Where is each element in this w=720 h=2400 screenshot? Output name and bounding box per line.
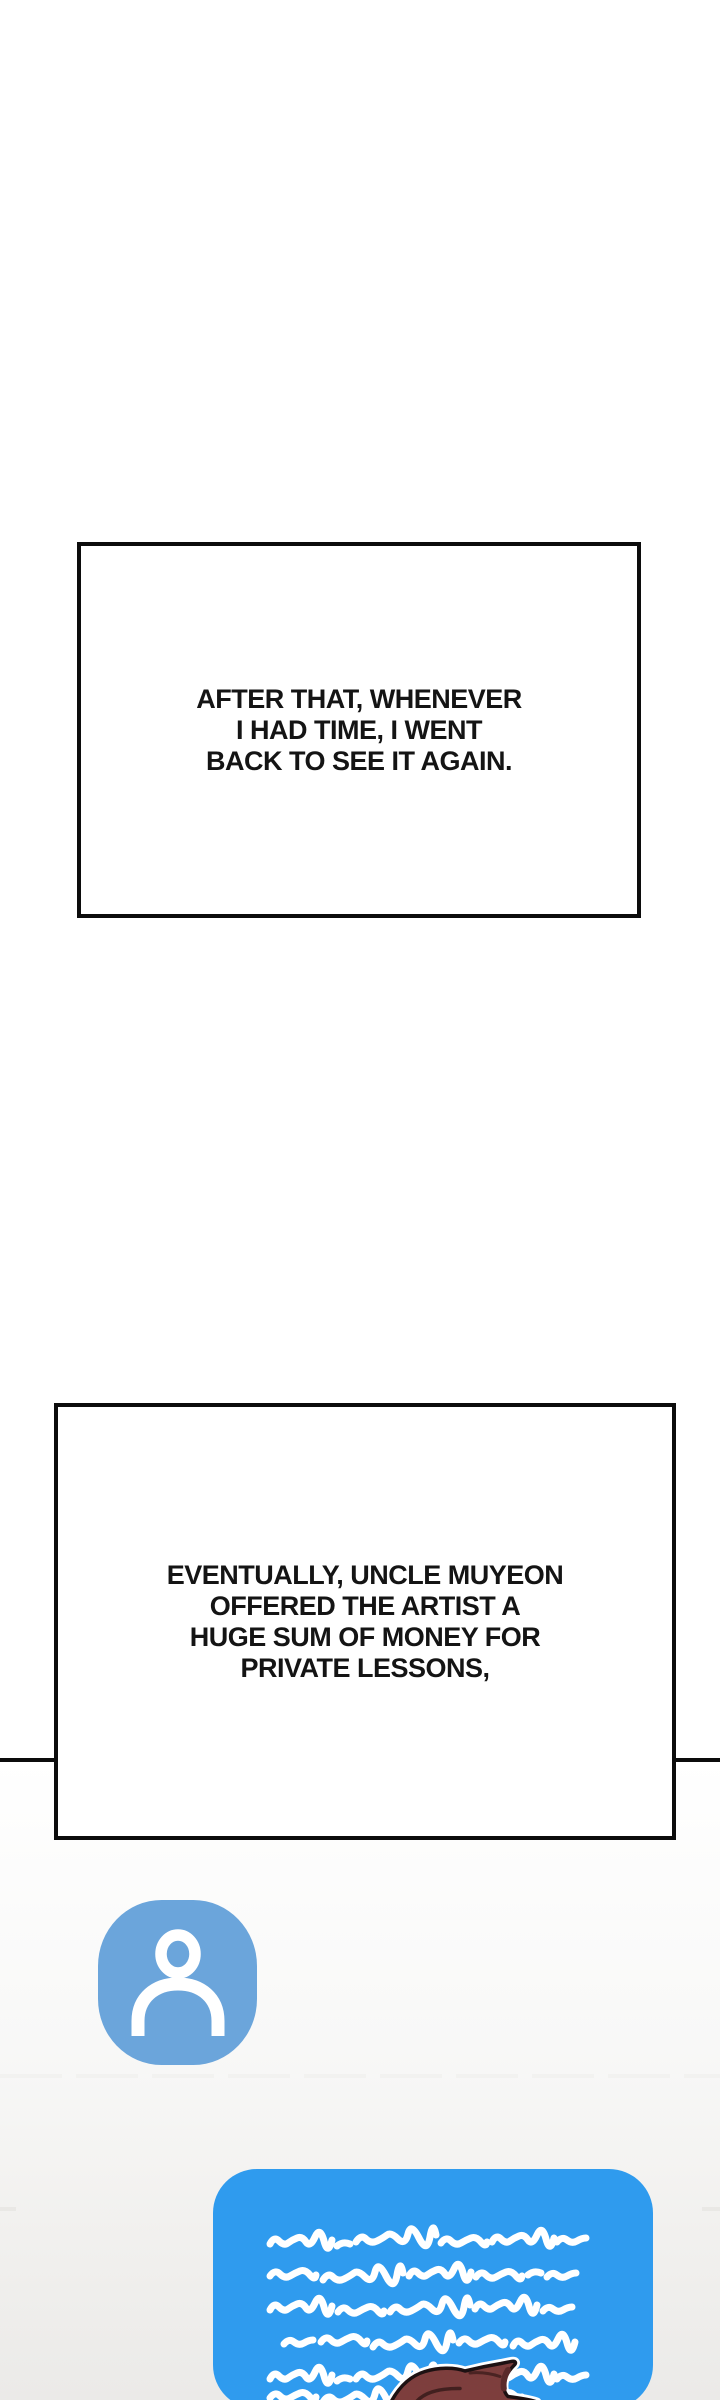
bubble-artwork bbox=[213, 2169, 653, 2400]
caption-line: AFTER THAT, WHENEVER bbox=[196, 684, 522, 715]
person-icon bbox=[98, 1900, 257, 2065]
caption-panel-2: EVENTUALLY, UNCLE MUYEON OFFERED THE ART… bbox=[54, 1403, 676, 1840]
background-dashed-line bbox=[0, 2074, 720, 2078]
background-edge-mark-right bbox=[702, 2207, 720, 2211]
caption-line: OFFERED THE ARTIST A bbox=[210, 1591, 521, 1622]
caption-line: I HAD TIME, I WENT bbox=[236, 715, 482, 746]
caption-line: PRIVATE LESSONS, bbox=[240, 1653, 489, 1684]
caption-line: HUGE SUM OF MONEY FOR bbox=[190, 1622, 541, 1653]
webtoon-page: AFTER THAT, WHENEVER I HAD TIME, I WENT … bbox=[0, 0, 720, 2400]
contact-avatar bbox=[98, 1900, 257, 2065]
caption-line: EVENTUALLY, UNCLE MUYEON bbox=[167, 1560, 564, 1591]
background-edge-mark-left bbox=[0, 2207, 16, 2211]
caption-panel-1: AFTER THAT, WHENEVER I HAD TIME, I WENT … bbox=[77, 542, 641, 918]
caption-line: BACK TO SEE IT AGAIN. bbox=[206, 746, 512, 777]
